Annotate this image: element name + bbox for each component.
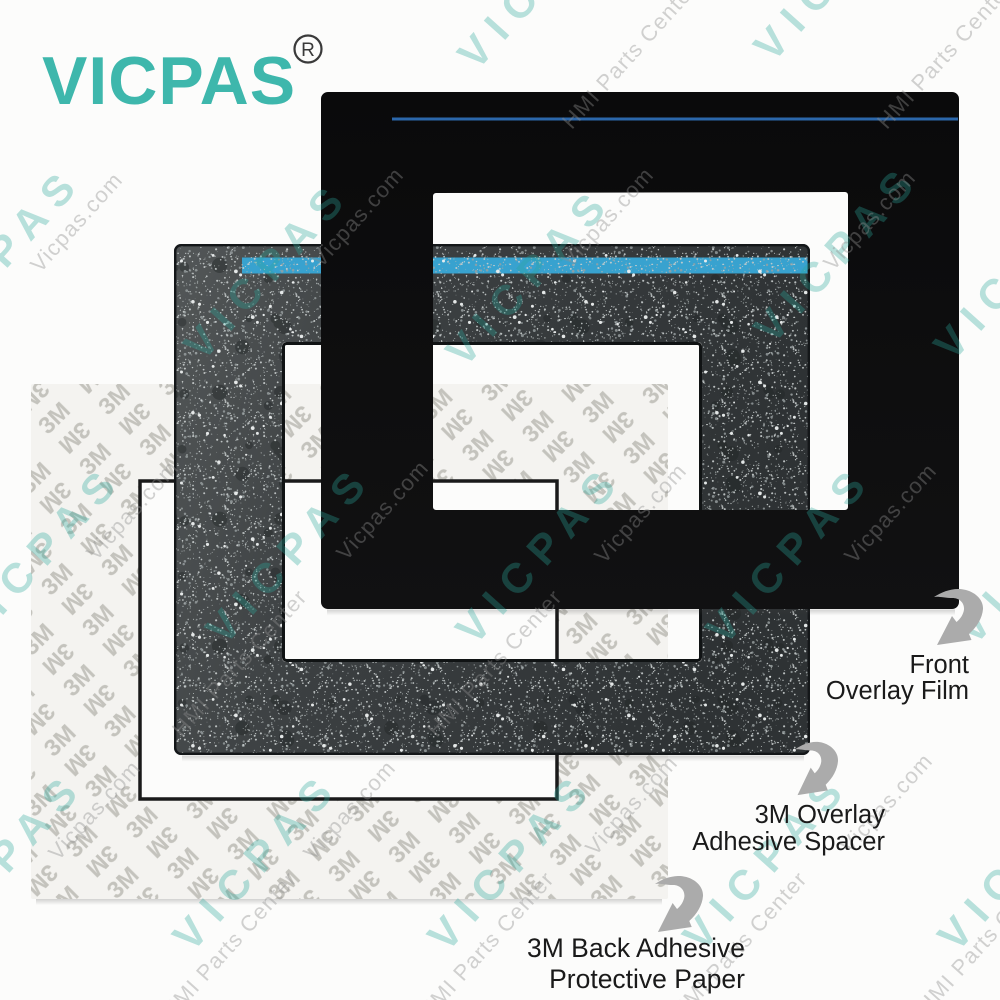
svg-text:Overlay Film: Overlay Film [826, 677, 969, 705]
svg-text:3M Back Adhesive: 3M Back Adhesive [527, 933, 745, 963]
svg-text:Front: Front [909, 651, 969, 679]
svg-text:3M Overlay: 3M Overlay [755, 801, 886, 829]
svg-text:VICPAS: VICPAS [42, 43, 296, 119]
svg-text:R: R [301, 40, 315, 61]
svg-text:Adhesive Spacer: Adhesive Spacer [692, 828, 885, 856]
svg-text:Protective Paper: Protective Paper [549, 964, 745, 994]
